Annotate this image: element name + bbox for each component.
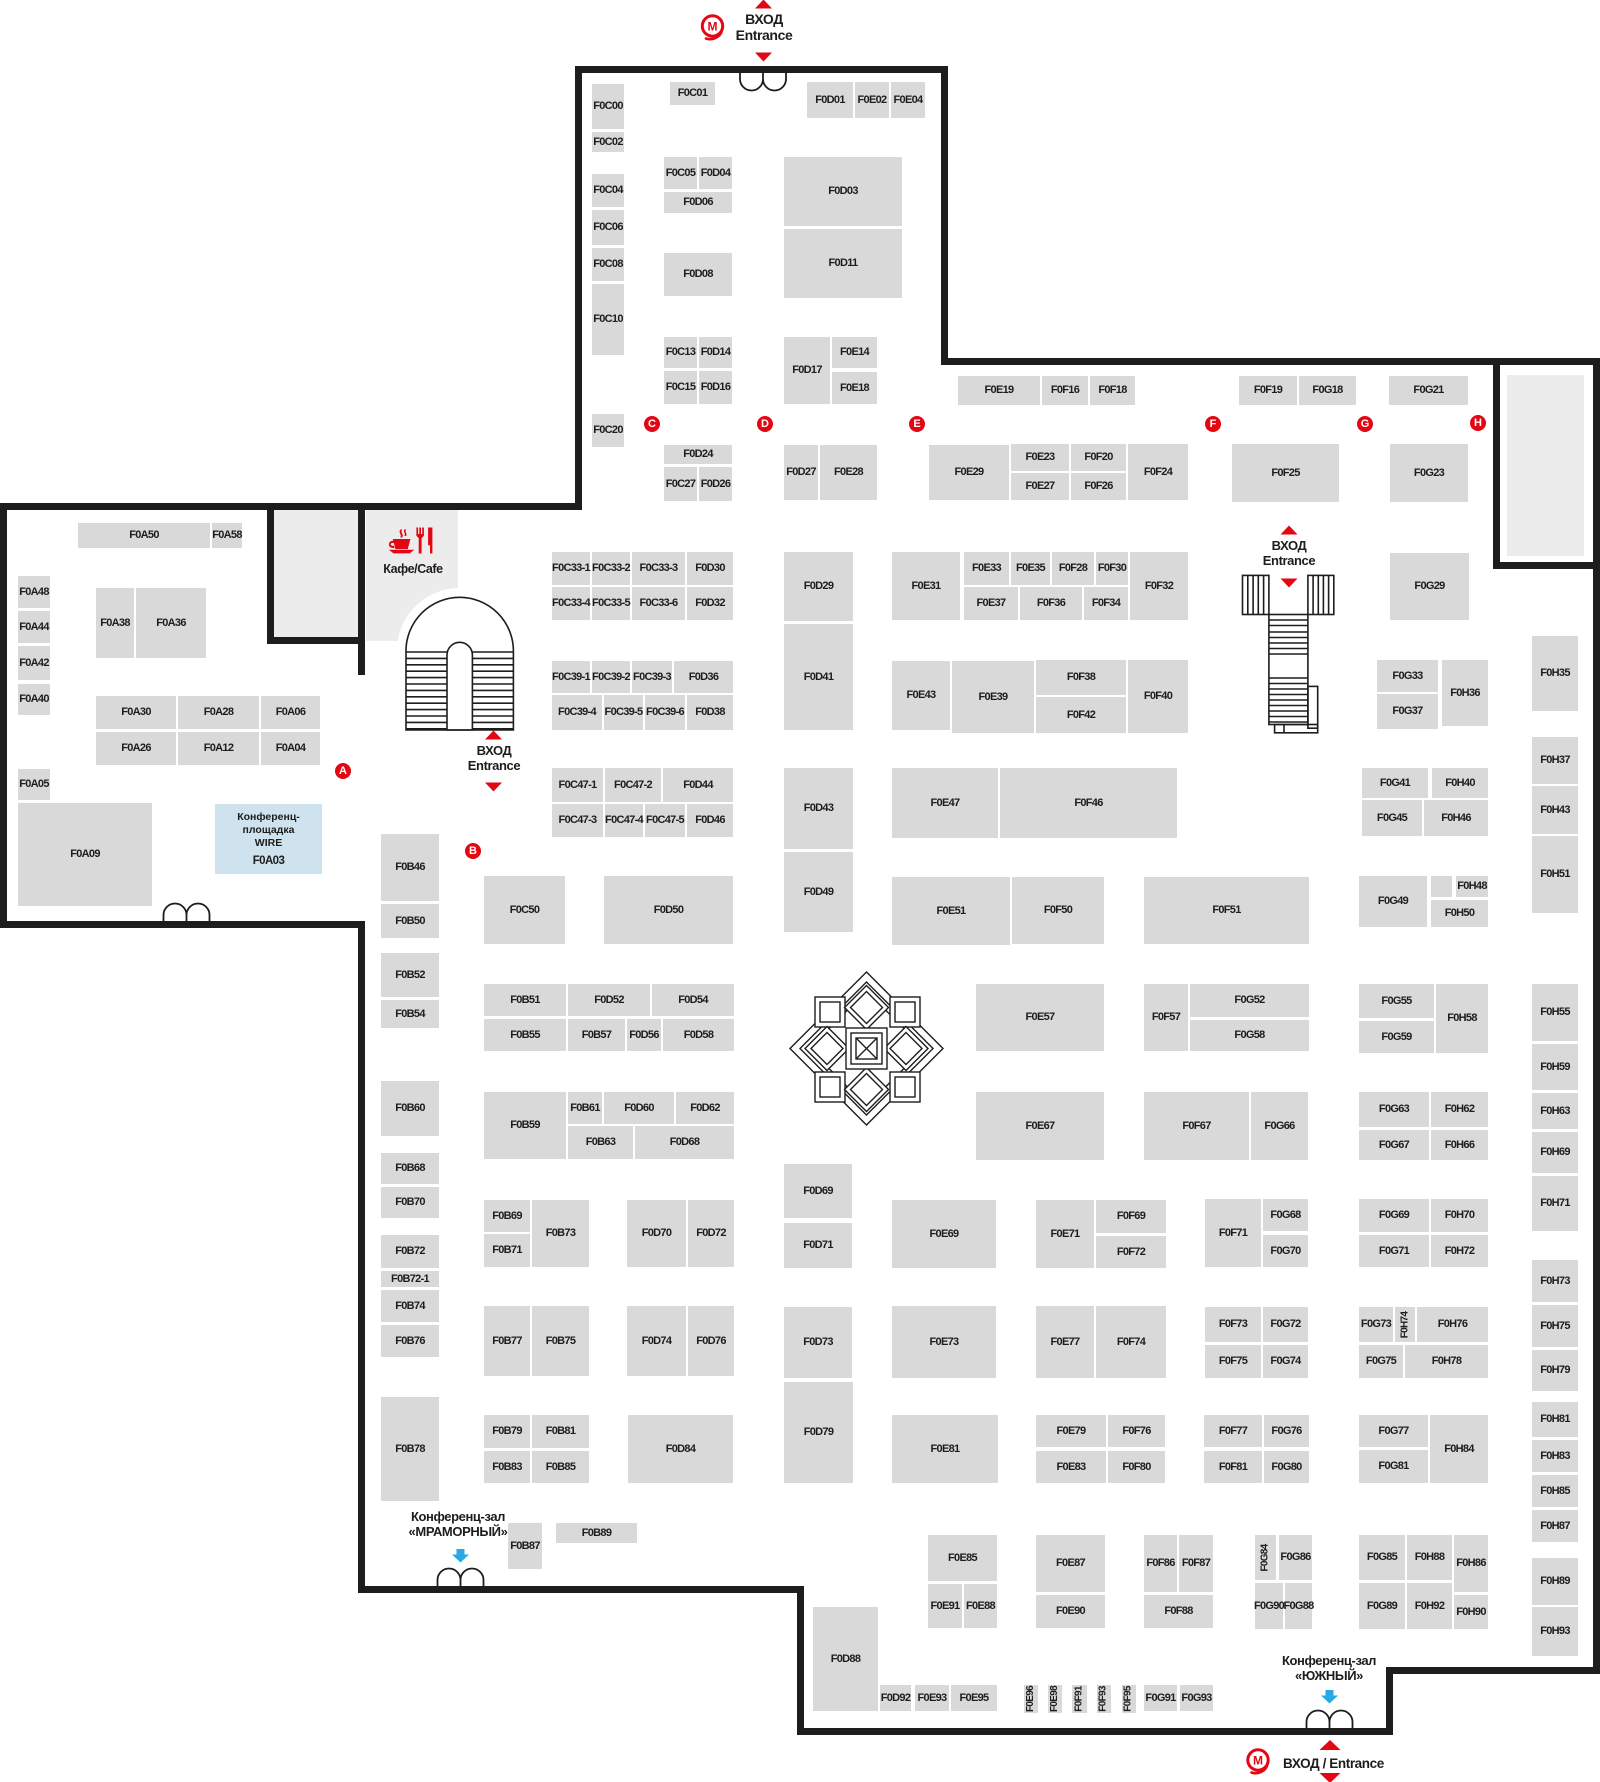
svg-text:М: М bbox=[708, 19, 718, 33]
svg-text:М: М bbox=[1253, 1753, 1263, 1767]
